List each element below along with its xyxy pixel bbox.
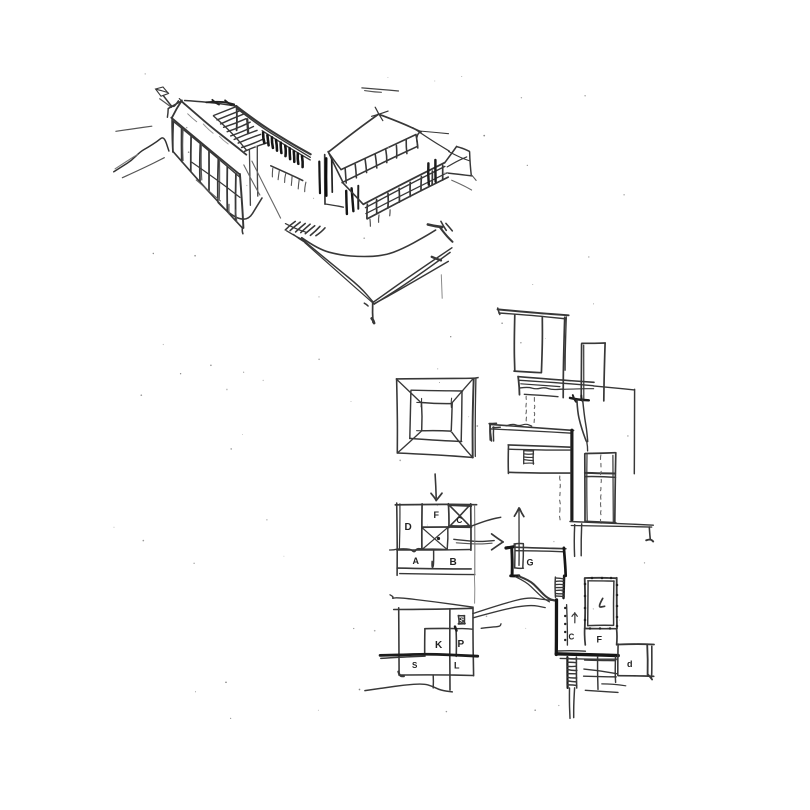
svg-text:B: B (450, 557, 457, 568)
svg-text:d: d (627, 659, 633, 669)
svg-text:S: S (459, 618, 464, 625)
svg-text:S: S (412, 661, 418, 670)
svg-text:G: G (527, 558, 534, 568)
svg-text:F: F (434, 510, 440, 520)
svg-text:K: K (435, 640, 443, 651)
svg-text:A: A (413, 556, 420, 566)
svg-text:C: C (569, 633, 575, 642)
svg-text:F: F (597, 635, 603, 645)
svg-text:C: C (457, 516, 463, 525)
svg-text:D: D (405, 522, 412, 533)
svg-text:L: L (454, 661, 460, 671)
svg-text:P: P (458, 639, 465, 650)
